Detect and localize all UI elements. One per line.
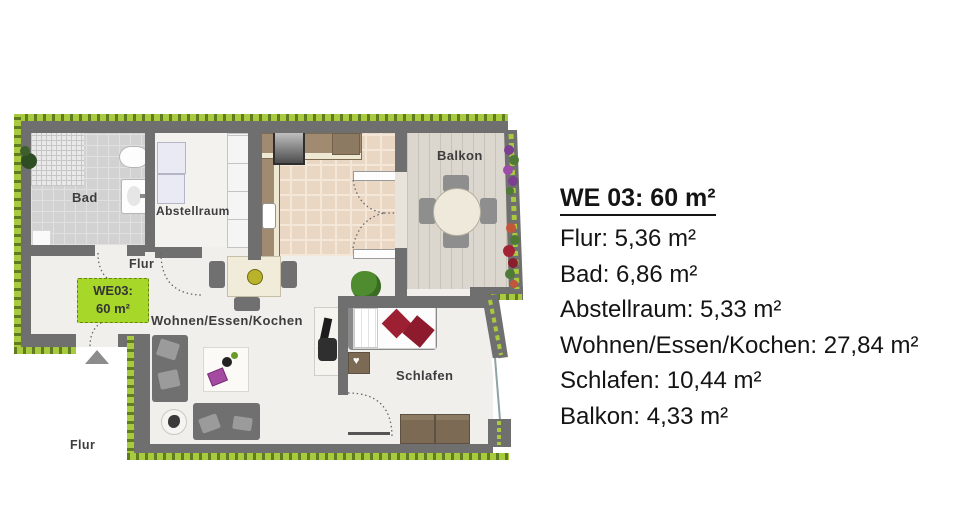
- legend-item-abstellraum: Abstellraum: 5,33 m²: [560, 292, 918, 328]
- room-label-bad: Bad: [72, 190, 98, 205]
- corridor-label-flur: Flur: [70, 438, 95, 452]
- hedge-plant: [20, 146, 37, 169]
- unit-badge-id: WE03:: [78, 282, 148, 300]
- room-label-flur: Flur: [129, 257, 154, 271]
- area-legend: WE 03: 60 m² Flur: 5,36 m² Bad: 6,86 m² …: [560, 184, 918, 434]
- room-label-balkon: Balkon: [437, 148, 483, 163]
- balcony-door-arc: [353, 180, 384, 213]
- legend-item-wohnen: Wohnen/Essen/Kochen: 27,84 m²: [560, 328, 918, 364]
- unit-badge: WE03: 60 m²: [77, 278, 149, 323]
- room-label-abstellraum: Abstellraum: [156, 204, 230, 218]
- legend-item-flur: Flur: 5,36 m²: [560, 221, 918, 257]
- legend-title: WE 03: 60 m²: [560, 184, 716, 216]
- entrance-arrow-icon: [85, 350, 109, 364]
- legend-item-balkon: Balkon: 4,33 m²: [560, 399, 918, 435]
- unit-badge-area: 60 m²: [78, 300, 148, 318]
- wall: [482, 294, 508, 359]
- floorplan-page: ♥: [0, 0, 965, 532]
- abstellraum-door-arc: [161, 253, 203, 295]
- entrance-door-arc: [90, 319, 118, 347]
- legend-item-bad: Bad: 6,86 m²: [560, 257, 918, 293]
- balcony-door-arc: [353, 213, 384, 248]
- legend-item-schlafen: Schlafen: 10,44 m²: [560, 363, 918, 399]
- room-label-wohnen: Wohnen/Essen/Kochen: [151, 313, 303, 328]
- room-label-schlafen: Schlafen: [396, 368, 453, 383]
- bedroom-door-arc: [348, 393, 392, 437]
